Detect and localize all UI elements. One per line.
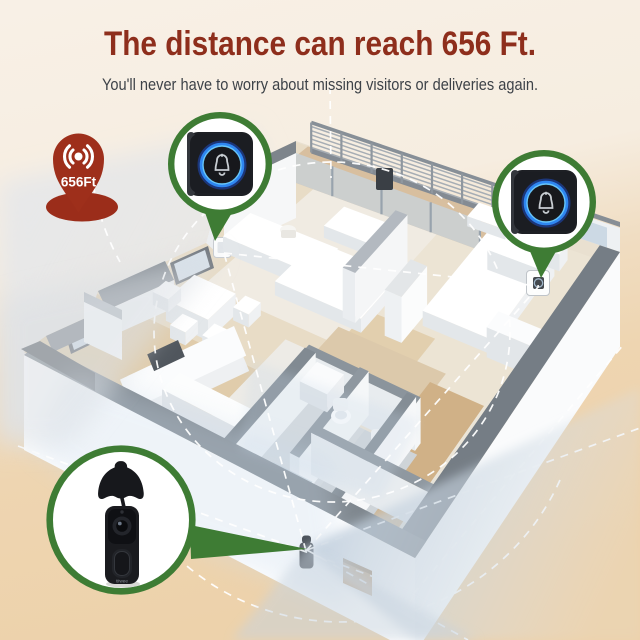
svg-text:656Ft: 656Ft [61,175,97,190]
svg-text:tiiwee: tiiwee [116,579,128,584]
svg-text:The distance can reach 656 Ft.: The distance can reach 656 Ft. [104,25,536,63]
svg-text:You'll never have to worry abo: You'll never have to worry about missing… [102,75,538,94]
